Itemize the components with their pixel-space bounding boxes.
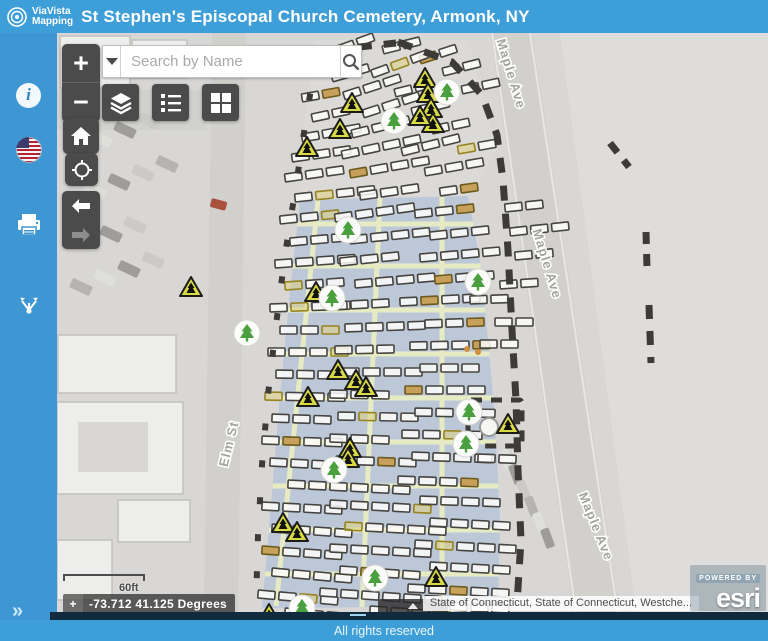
share-icon [17,293,41,317]
footer-bar: All rights reserved [0,620,768,641]
map-bottom-edge [50,612,768,620]
search-submit-button[interactable] [340,46,361,77]
arrow-right-icon [71,227,91,243]
coordinates-widget[interactable]: + -73.712 41.125 Degrees [63,594,235,612]
zoom-out-button[interactable]: − [62,83,100,122]
share-button[interactable] [0,283,57,327]
language-flag-button[interactable] [0,128,57,172]
search-icon [341,52,361,72]
home-icon [70,126,92,146]
map-viewport[interactable]: Maple AveMaple AveMaple AveElm St + − [57,33,768,612]
coordinate-crosshair-icon: + [63,594,83,612]
home-button[interactable] [63,118,99,154]
viavista-logo-text: ViaVista Mapping [32,7,73,27]
crosshair-icon [71,159,93,181]
scale-bar [63,574,145,581]
locate-button[interactable] [65,153,98,186]
footer-handle [350,614,366,616]
printer-icon [16,213,42,237]
legend-button[interactable] [152,84,189,121]
app-window: ViaVista Mapping St Stephen's Episcopal … [0,0,768,641]
usa-flag-icon [16,137,42,163]
chevron-up-icon [408,603,418,609]
search-options-dropdown[interactable] [103,46,121,77]
rights-text: All rights reserved [334,624,434,638]
arrow-left-icon [71,198,91,214]
layers-button[interactable] [102,84,139,121]
viavista-logo[interactable]: ViaVista Mapping [0,6,81,28]
legend-list-icon [159,91,183,115]
next-extent-button[interactable] [62,220,100,249]
info-button[interactable]: i [0,73,57,117]
info-icon: i [16,83,41,108]
chevron-down-icon [106,58,118,65]
app-header: ViaVista Mapping St Stephen's Episcopal … [0,0,768,33]
extent-history-control [62,191,100,249]
search-input[interactable] [121,46,340,77]
map-attribution: State of Connecticut, State of Connectic… [423,596,699,611]
basemap-gallery-button[interactable] [202,84,239,121]
esri-logo[interactable]: POWERED BY esri [690,565,766,611]
page-title: St Stephen's Episcopal Church Cemetery, … [81,7,530,27]
powered-by-label: POWERED BY [696,574,760,583]
coordinates-value: -73.712 41.125 Degrees [83,595,235,613]
zoom-control: + − [62,44,100,122]
zoom-in-button[interactable]: + [62,44,100,83]
sidebar: i » [0,33,57,641]
scale-label: 60ft [119,582,139,594]
viavista-logo-icon [6,6,28,28]
previous-extent-button[interactable] [62,191,100,220]
search-bar [102,45,362,78]
grid-icon [209,91,233,115]
esri-brand-text: esri [696,585,760,611]
layers-icon [109,91,133,115]
print-button[interactable] [0,203,57,247]
